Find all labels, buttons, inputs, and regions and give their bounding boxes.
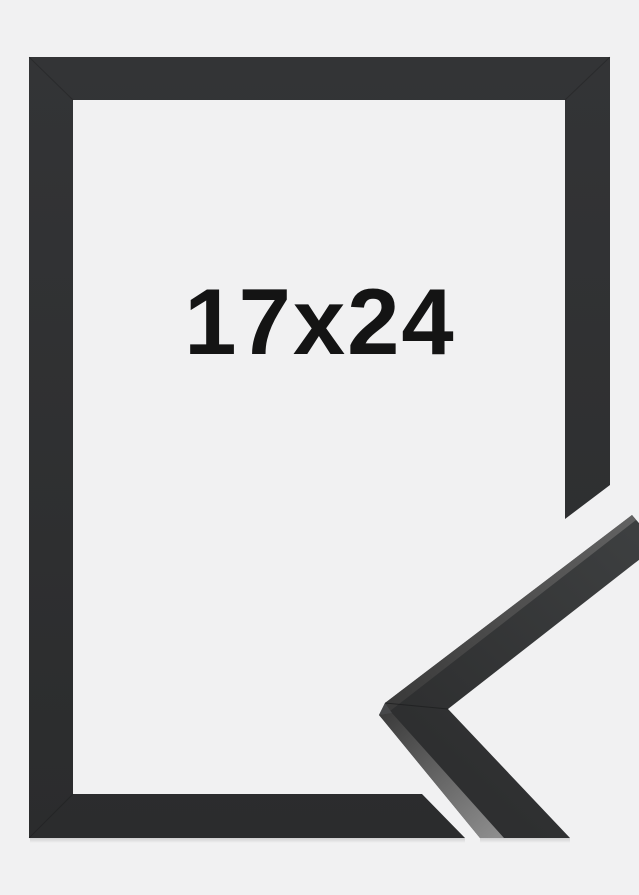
sample-bottom-shadow bbox=[480, 838, 570, 843]
frame-bottom-shadow bbox=[30, 838, 465, 843]
size-label: 17x24 bbox=[184, 269, 455, 374]
product-photo: 17x24 bbox=[0, 0, 639, 895]
background bbox=[0, 0, 639, 895]
frame-product-image: 17x24 bbox=[0, 0, 639, 895]
